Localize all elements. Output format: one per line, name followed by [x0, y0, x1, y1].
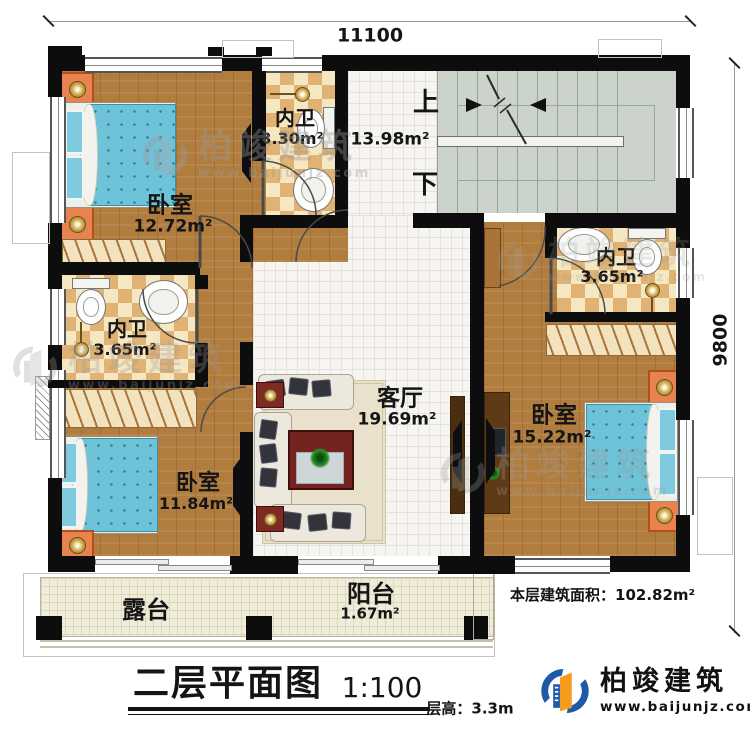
- pillow: [658, 408, 677, 452]
- sliding-door: [158, 565, 232, 571]
- toilet-tank: [628, 228, 666, 239]
- eave-outline: [598, 39, 662, 58]
- eave-outline: [12, 152, 50, 244]
- window: [515, 558, 610, 574]
- room-label-bedroom-bl: 卧室: [176, 473, 220, 495]
- window: [678, 420, 694, 515]
- room-label-bath-top: 内卫: [275, 108, 315, 128]
- sconce-lamp-icon: [295, 87, 310, 102]
- wall: [230, 556, 298, 574]
- balcony-side-rail: [473, 568, 494, 640]
- sofa-pillow: [311, 379, 331, 398]
- stair-up-label: 上: [413, 90, 439, 116]
- brand-block: 柏竣建筑 www.baijunjz.com: [538, 662, 750, 720]
- wardrobe: [546, 324, 678, 356]
- wall: [438, 556, 515, 574]
- wall: [48, 55, 62, 97]
- plan-scale: 1:100: [342, 674, 423, 702]
- wardrobe: [62, 389, 197, 428]
- lamp-icon: [656, 379, 673, 396]
- room-area-bath-right: 3.65m²: [580, 269, 643, 285]
- wall: [48, 345, 62, 370]
- sofa-pillow: [331, 511, 351, 529]
- wall: [195, 343, 208, 387]
- wall: [48, 380, 195, 388]
- sliding-door: [298, 559, 374, 565]
- door-leaf: [484, 228, 501, 288]
- wall: [545, 312, 690, 322]
- wardrobe: [62, 239, 166, 263]
- room-label-bedroom-right: 卧室: [531, 405, 577, 428]
- room-label-living: 客厅: [377, 388, 423, 411]
- wall: [335, 71, 348, 215]
- stair-down-label: 下: [412, 172, 438, 198]
- room-area-bath-left: 3.65m²: [93, 342, 156, 358]
- dimension-right-label: 9800: [712, 314, 731, 367]
- wall: [676, 55, 690, 108]
- side-table: [256, 506, 284, 532]
- terrace-post-mid: [246, 616, 272, 640]
- brand-name: 柏竣建筑: [600, 668, 750, 695]
- window: [262, 57, 322, 73]
- title-underline-thin: [128, 714, 430, 715]
- bed-blanket: [78, 438, 158, 532]
- room-label-terrace: 露台: [122, 598, 170, 622]
- sofa-pillow: [259, 467, 278, 487]
- room-area-bath-top: 3.30m²: [260, 131, 323, 147]
- pillow: [658, 452, 677, 496]
- wall: [610, 556, 690, 572]
- eave-outline: [697, 477, 733, 555]
- wall: [240, 342, 253, 385]
- wall: [195, 275, 208, 289]
- pillow: [65, 156, 84, 200]
- sconce-lamp-icon: [645, 283, 660, 298]
- wall: [48, 262, 200, 275]
- window: [50, 289, 66, 345]
- bed-blanket: [88, 104, 176, 206]
- sofa-pillow: [259, 443, 278, 464]
- lamp-icon: [69, 216, 86, 233]
- toilet-tank: [72, 278, 110, 289]
- sofa-pillow: [307, 513, 328, 532]
- room-label-bedroom-tl: 卧室: [147, 195, 193, 218]
- room-area-bedroom-right: 15.22m²: [513, 430, 592, 447]
- window: [85, 57, 222, 73]
- side-table: [256, 382, 284, 408]
- lamp-icon: [69, 81, 86, 98]
- room-area-bedroom-tl: 12.72m²: [134, 219, 213, 236]
- sconce-lamp-icon: [74, 342, 89, 357]
- title-underline: [128, 707, 430, 711]
- floor-vestibule-strip: [253, 228, 348, 262]
- wall: [48, 223, 62, 289]
- sofa-pillow: [288, 377, 309, 396]
- terrace-rail-line-2: [40, 646, 493, 648]
- floor-area-note: 本层建筑面积：102.82m²: [510, 584, 695, 605]
- wall: [48, 556, 95, 572]
- room-area-balcony: 1.67m²: [340, 607, 399, 622]
- terrace-post-left: [36, 616, 62, 640]
- room-label-balcony: 阳台: [347, 582, 395, 606]
- lamp-icon: [69, 537, 86, 554]
- plant-icon: [310, 448, 330, 468]
- wall: [252, 215, 348, 228]
- sofa-pillow: [281, 511, 302, 530]
- brand-url: www.baijunjz.com: [600, 699, 750, 715]
- floor-height-label: 层高：3.3m: [426, 702, 513, 717]
- stair-rail: [437, 136, 624, 147]
- dimension-top-label: 11100: [337, 27, 403, 46]
- window: [50, 97, 66, 223]
- toilet-icon: [76, 289, 106, 325]
- wall: [48, 46, 82, 55]
- eave-outline: [222, 40, 294, 58]
- room-area-living: 19.69m²: [358, 412, 437, 429]
- pillow: [65, 110, 84, 154]
- floor-area-value: 102.82m²: [615, 586, 695, 604]
- wall: [413, 213, 484, 228]
- sliding-door: [364, 565, 440, 571]
- wall: [240, 215, 253, 262]
- brand-logo-icon: [538, 662, 592, 720]
- wall: [470, 228, 484, 556]
- dimension-line-right: [734, 63, 735, 633]
- sofa-pillow: [259, 419, 278, 440]
- terrace-rail-line-1: [40, 640, 493, 642]
- lamp-icon: [264, 389, 277, 402]
- floor-area-label: 本层建筑面积：: [510, 586, 615, 604]
- floor-plan-canvas: 11100 9800 卧室 12.72m² 内卫 3.30m² 上 13.98m…: [0, 0, 750, 732]
- window: [678, 108, 694, 178]
- wall: [545, 228, 557, 258]
- room-area-bedroom-bl: 11.84m²: [159, 496, 233, 512]
- wall: [240, 432, 253, 556]
- room-label-bath-right: 内卫: [596, 247, 636, 267]
- lamp-icon: [264, 513, 277, 526]
- bed-blanket: [586, 404, 652, 500]
- wall: [545, 213, 690, 228]
- room-label-bath-left: 内卫: [107, 319, 147, 339]
- plan-title: 二层平面图: [133, 666, 323, 702]
- sink-icon: [293, 168, 334, 212]
- window: [678, 248, 694, 298]
- lamp-icon: [656, 507, 673, 524]
- hall-area-label: 13.98m²: [351, 132, 430, 149]
- dimension-line-top: [48, 21, 690, 22]
